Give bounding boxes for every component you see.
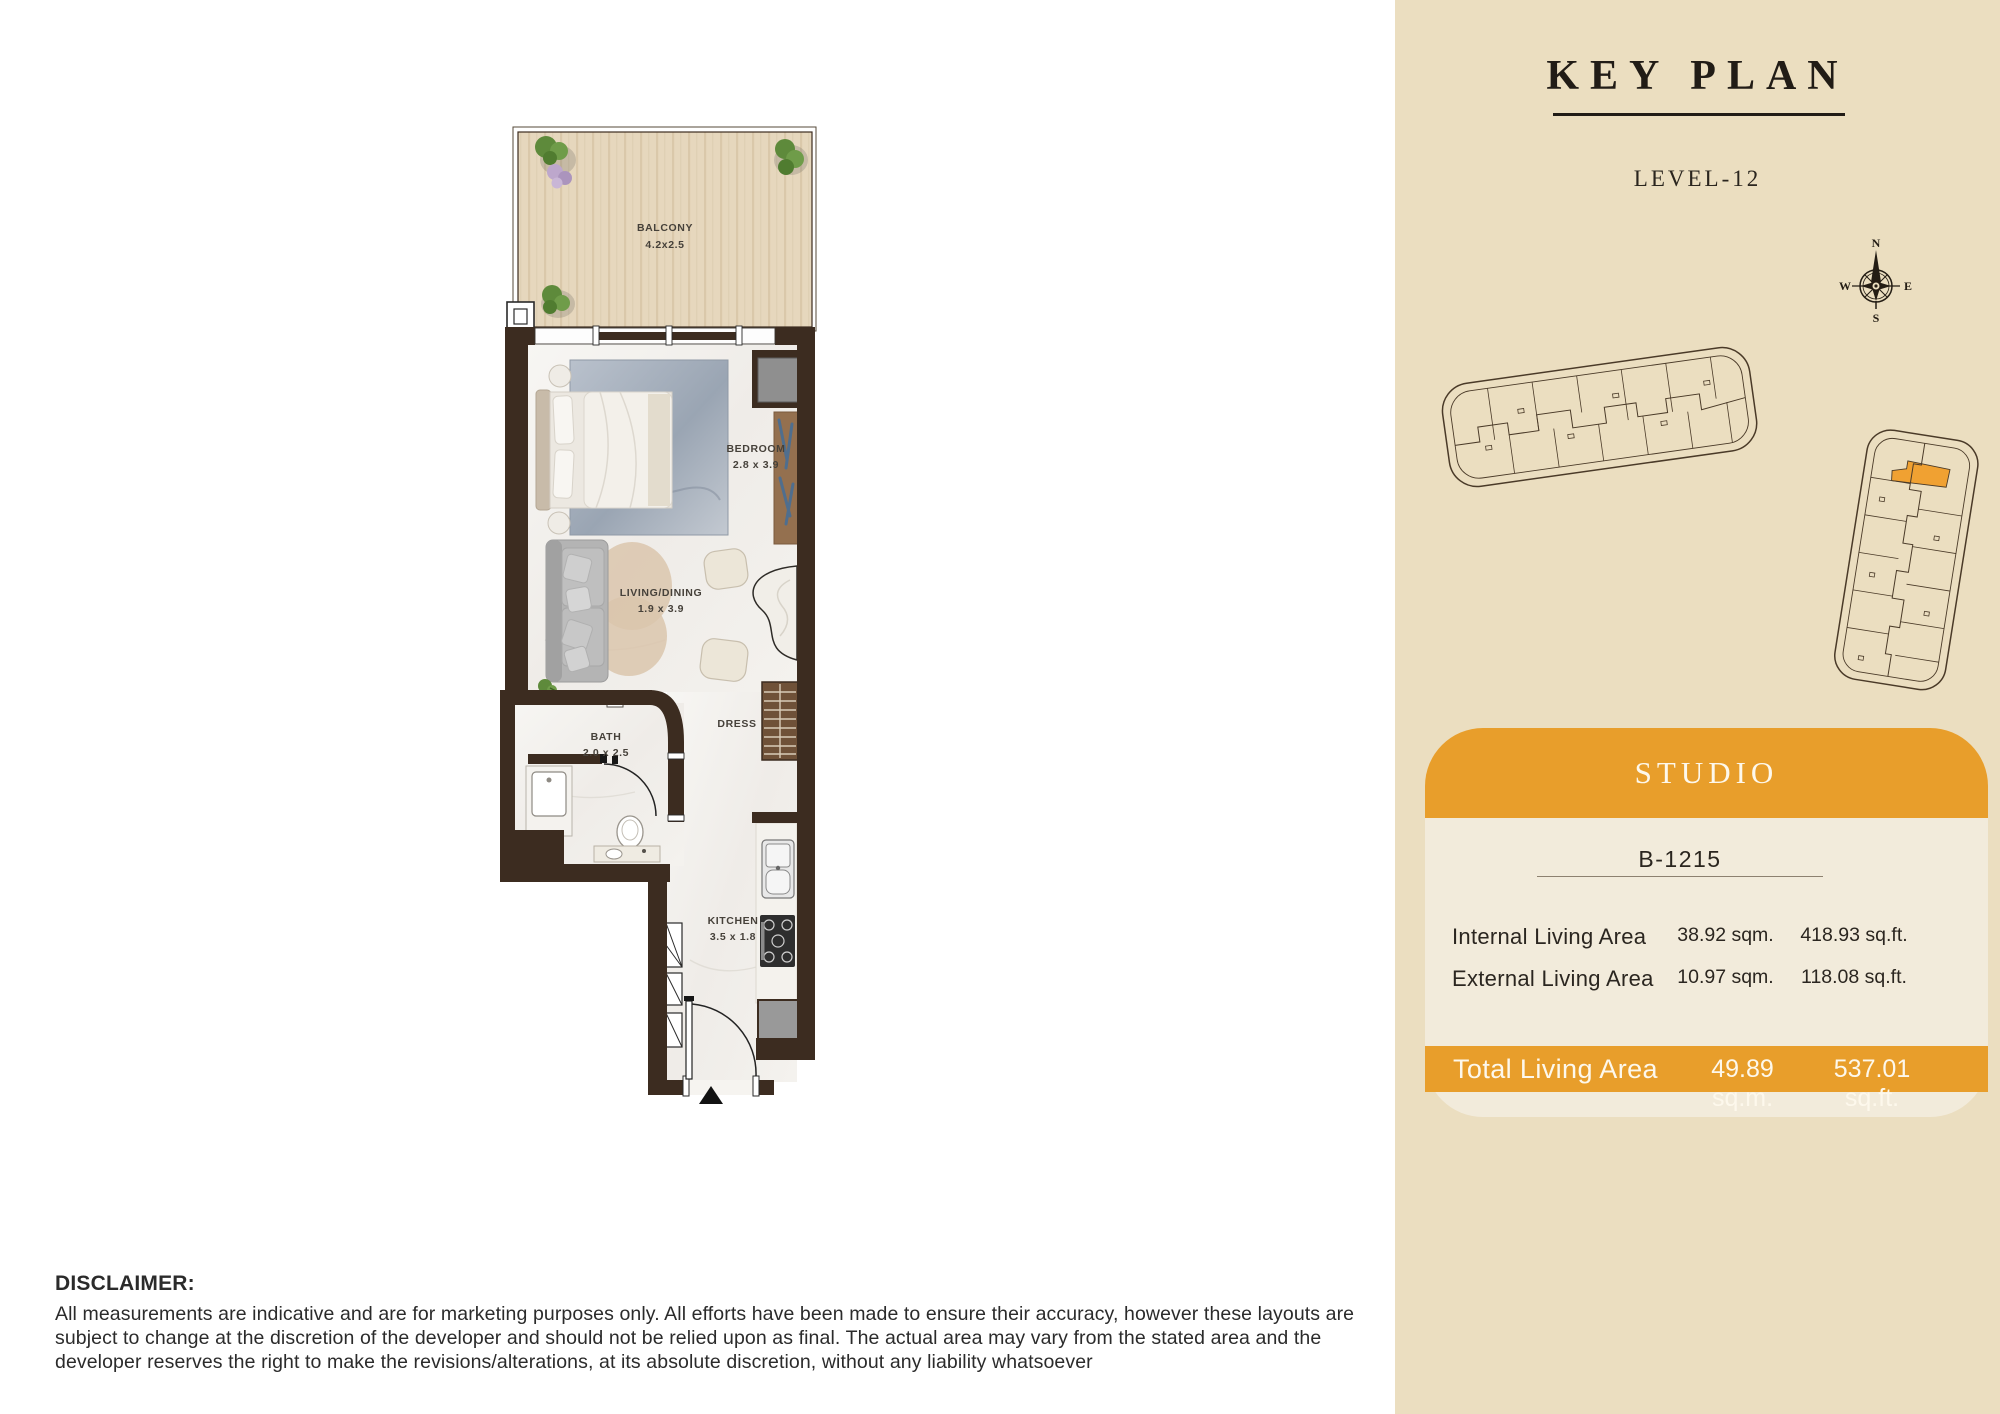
service-shafts xyxy=(666,923,682,1047)
external-area-row: External Living Area 10.97 sqm. 118.08 s… xyxy=(1425,966,1988,992)
unit-type-header: STUDIO xyxy=(1425,728,1988,818)
key-plan-building-a xyxy=(1420,330,1780,510)
compass-icon: N W E S xyxy=(1838,238,1918,334)
compass-w: W xyxy=(1839,279,1851,293)
key-plan-panel: KEY PLAN LEVEL-12 N W E S xyxy=(1395,0,2000,1414)
internal-area-row: Internal Living Area 38.92 sqm. 418.93 s… xyxy=(1425,924,1988,950)
external-area-label: External Living Area xyxy=(1452,966,1654,992)
stove xyxy=(760,915,795,967)
disclaimer: DISCLAIMER: All measurements are indicat… xyxy=(55,1272,1375,1374)
key-plan-title: KEY PLAN xyxy=(1395,52,2000,100)
total-area-sqft: 537.01 sq.ft. xyxy=(1807,1055,1937,1113)
sofa xyxy=(546,540,608,682)
total-area-label: Total Living Area xyxy=(1453,1054,1658,1085)
internal-area-sqft: 418.93 sq.ft. xyxy=(1785,924,1923,947)
disclaimer-body: All measurements are indicative and are … xyxy=(55,1302,1375,1374)
compass-n: N xyxy=(1872,238,1881,250)
bedroom-dims: 2.8 x 3.9 xyxy=(733,459,779,471)
vanity-sink xyxy=(594,846,660,862)
key-plan-building-b xyxy=(1812,412,2000,712)
floor-plan: BALCONY 4.2x2.5 BEDROOM 2.8 x 3.9 LIVING… xyxy=(495,100,835,1115)
unit-type-label: STUDIO xyxy=(1635,755,1779,791)
total-area-band: Total Living Area 49.89 sq.m. 537.01 sq.… xyxy=(1425,1046,1988,1092)
internal-area-label: Internal Living Area xyxy=(1452,924,1646,950)
bath-label: BATH xyxy=(591,731,622,743)
bed xyxy=(536,390,672,510)
ac-unit xyxy=(752,350,802,408)
balcony-window xyxy=(535,326,775,345)
unit-number: B-1215 xyxy=(1537,846,1823,873)
bath-dims: 2.0 x 2.5 xyxy=(583,747,629,759)
living-dining-dims: 1.9 x 3.9 xyxy=(638,603,684,615)
bedroom-label: BEDROOM xyxy=(726,443,785,455)
kitchen-sink xyxy=(762,840,794,898)
dress-wardrobe xyxy=(762,682,798,760)
living-dining-label: LIVING/DINING xyxy=(620,587,702,599)
disclaimer-heading: DISCLAIMER: xyxy=(55,1272,1375,1296)
kitchen-dims: 3.5 x 1.8 xyxy=(710,931,756,943)
internal-area-sqm: 38.92 sqm. xyxy=(1653,924,1798,947)
external-area-sqm: 10.97 sqm. xyxy=(1653,966,1798,989)
shower xyxy=(526,766,572,836)
balcony-label: BALCONY xyxy=(637,222,693,234)
level-label: LEVEL-12 xyxy=(1395,166,2000,192)
unit-number-underline xyxy=(1537,876,1823,877)
highlighted-unit xyxy=(1891,459,1951,490)
dress-label: DRESS xyxy=(717,718,756,730)
compass-e: E xyxy=(1904,279,1912,293)
unit-card: STUDIO B-1215 Internal Living Area 38.92… xyxy=(1425,728,1988,1117)
external-area-sqft: 118.08 sq.ft. xyxy=(1785,966,1923,989)
compass-s: S xyxy=(1873,311,1880,325)
title-underline xyxy=(1553,113,1845,116)
total-area-sqm: 49.89 sq.m. xyxy=(1680,1055,1805,1113)
fridge xyxy=(758,1000,798,1040)
kitchen-label: KITCHEN xyxy=(708,915,759,927)
balcony-column xyxy=(507,302,534,329)
balcony-dims: 4.2x2.5 xyxy=(645,239,684,251)
toilet xyxy=(617,816,643,848)
